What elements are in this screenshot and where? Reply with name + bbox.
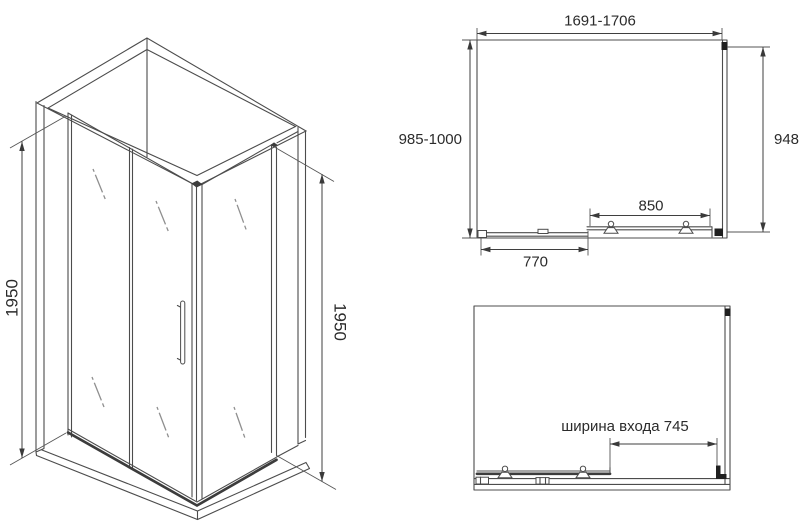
roller-wheel <box>580 466 585 471</box>
door-handle-icon <box>177 301 184 364</box>
roller-wheel <box>608 221 613 226</box>
extension-lines <box>610 438 717 473</box>
roller-icon <box>498 466 512 478</box>
right-wall-profile <box>298 128 306 445</box>
dimension-depth: 985-1000 <box>399 40 477 238</box>
wall-bracket <box>722 42 728 50</box>
glass-bottom-edge <box>68 429 298 502</box>
door-division-post <box>130 148 133 471</box>
panel-end-cap <box>478 231 487 238</box>
isometric-view: 1950 1950 <box>3 38 350 520</box>
bottom-rail <box>68 433 277 506</box>
glass-shine-marks <box>92 169 247 441</box>
panel-clip <box>538 229 548 233</box>
glass-top-edges <box>68 113 298 185</box>
plan-depth-label: 985-1000 <box>399 131 462 148</box>
plan-door-label: 850 <box>638 198 663 215</box>
dimension-width: 1691-1706 <box>477 13 722 41</box>
rail-clip <box>536 478 549 485</box>
plan-width-label: 1691-1706 <box>564 13 636 30</box>
shower-drawing-svg: 1950 1950 1691-1706 <box>0 0 800 526</box>
roller-base <box>604 228 618 234</box>
roller-wheel <box>683 221 688 226</box>
technical-drawing-canvas: 1950 1950 1691-1706 <box>0 0 800 526</box>
shower-tray <box>37 450 310 520</box>
fixed-panel <box>479 233 588 237</box>
door-left-post <box>68 113 72 437</box>
roller-wheel <box>502 466 507 471</box>
dimension-height-right: 1950 <box>274 147 350 490</box>
plan-side-panel-label: 948 <box>774 131 799 148</box>
left-wall-profile <box>36 102 44 456</box>
enclosure-outline <box>474 306 730 490</box>
iso-left-height-label: 1950 <box>3 279 22 317</box>
roller-icon <box>576 466 590 478</box>
extension-lines <box>727 47 770 232</box>
dimension-door: 850 <box>590 198 710 227</box>
wall-bracket <box>725 309 731 317</box>
entry-view: ширина входа 745 <box>474 306 731 490</box>
rail-end-bracket <box>476 477 489 484</box>
front-corner-post <box>192 184 202 501</box>
dimension-entry-width: ширина входа 745 <box>561 418 717 473</box>
plan-view: 1691-1706 985-1000 948 850 770 <box>399 13 799 271</box>
front-post-cap <box>191 181 202 188</box>
dimension-fixed-panel: 770 <box>481 231 588 271</box>
plan-fixed-panel-label: 770 <box>523 254 548 271</box>
enclosure-outline <box>477 40 727 238</box>
iso-right-height-label: 1950 <box>331 303 350 341</box>
extension-lines <box>481 231 588 256</box>
top-frame <box>37 38 306 186</box>
dimension-side-panel: 948 <box>727 47 799 232</box>
entry-width-label: ширина входа 745 <box>561 418 689 435</box>
dimension-height-left: 1950 <box>3 116 67 465</box>
extension-lines <box>274 147 337 490</box>
roller-base <box>679 228 693 234</box>
handle-bar <box>181 301 185 364</box>
side-panel-post <box>272 145 277 456</box>
wall-bracket <box>715 229 724 237</box>
